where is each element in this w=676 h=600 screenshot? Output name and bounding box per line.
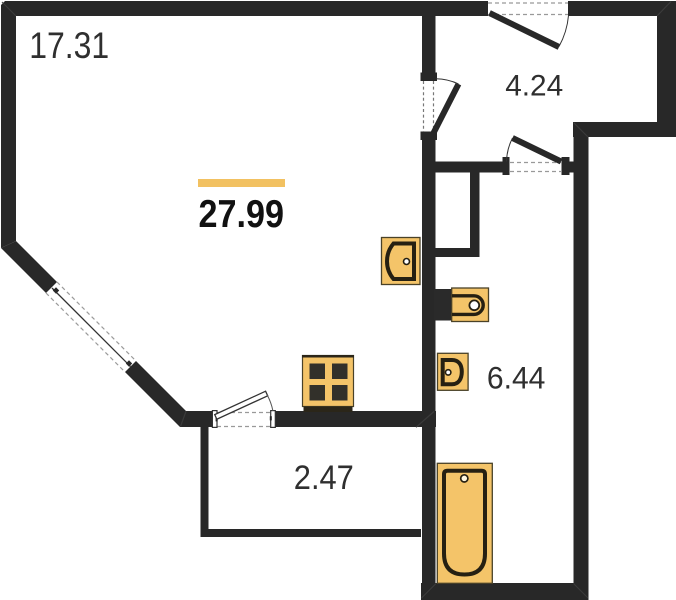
svg-text:17.31: 17.31: [29, 25, 109, 66]
svg-text:4.24: 4.24: [505, 70, 563, 103]
svg-text:2.47: 2.47: [294, 459, 354, 497]
svg-text:6.44: 6.44: [487, 360, 546, 395]
svg-text:27.99: 27.99: [199, 193, 285, 236]
